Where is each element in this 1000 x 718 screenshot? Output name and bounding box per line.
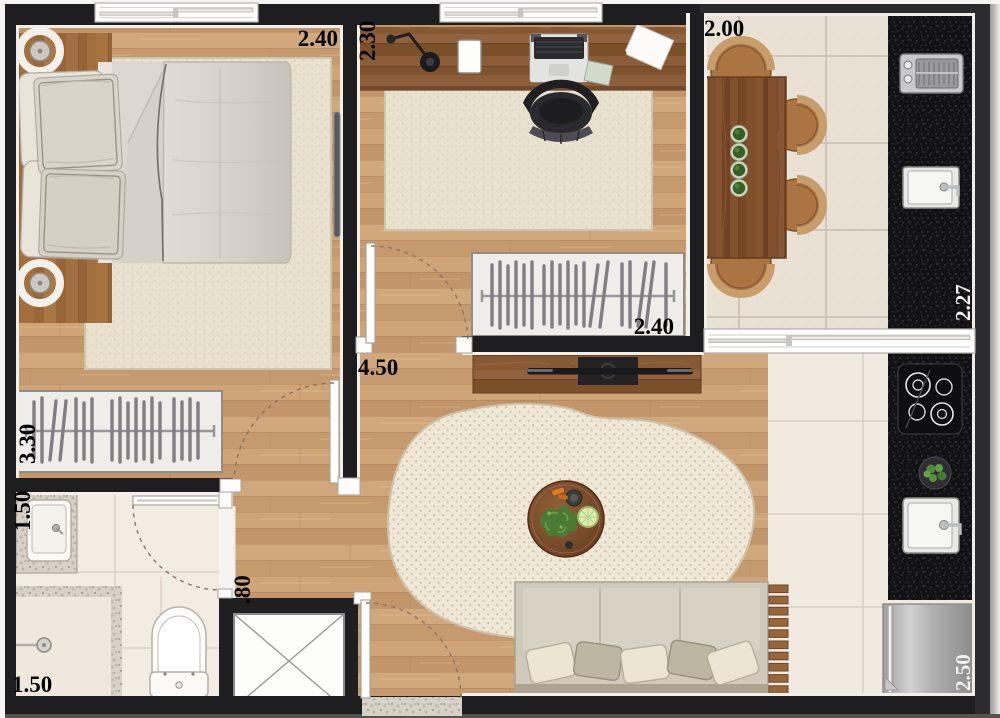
svg-text:1.50: 1.50 bbox=[10, 491, 35, 531]
svg-text:4.50: 4.50 bbox=[358, 355, 398, 380]
svg-text:2.30: 2.30 bbox=[355, 21, 380, 61]
svg-text:2.00: 2.00 bbox=[704, 16, 744, 41]
svg-text:2.50: 2.50 bbox=[951, 654, 975, 691]
svg-text:2.40: 2.40 bbox=[634, 314, 674, 339]
svg-text:2.40: 2.40 bbox=[298, 26, 338, 51]
svg-text:2.27: 2.27 bbox=[951, 284, 975, 321]
svg-text:1.50: 1.50 bbox=[12, 672, 52, 697]
svg-text:3.30: 3.30 bbox=[15, 424, 40, 464]
svg-text:.80: .80 bbox=[230, 575, 255, 604]
